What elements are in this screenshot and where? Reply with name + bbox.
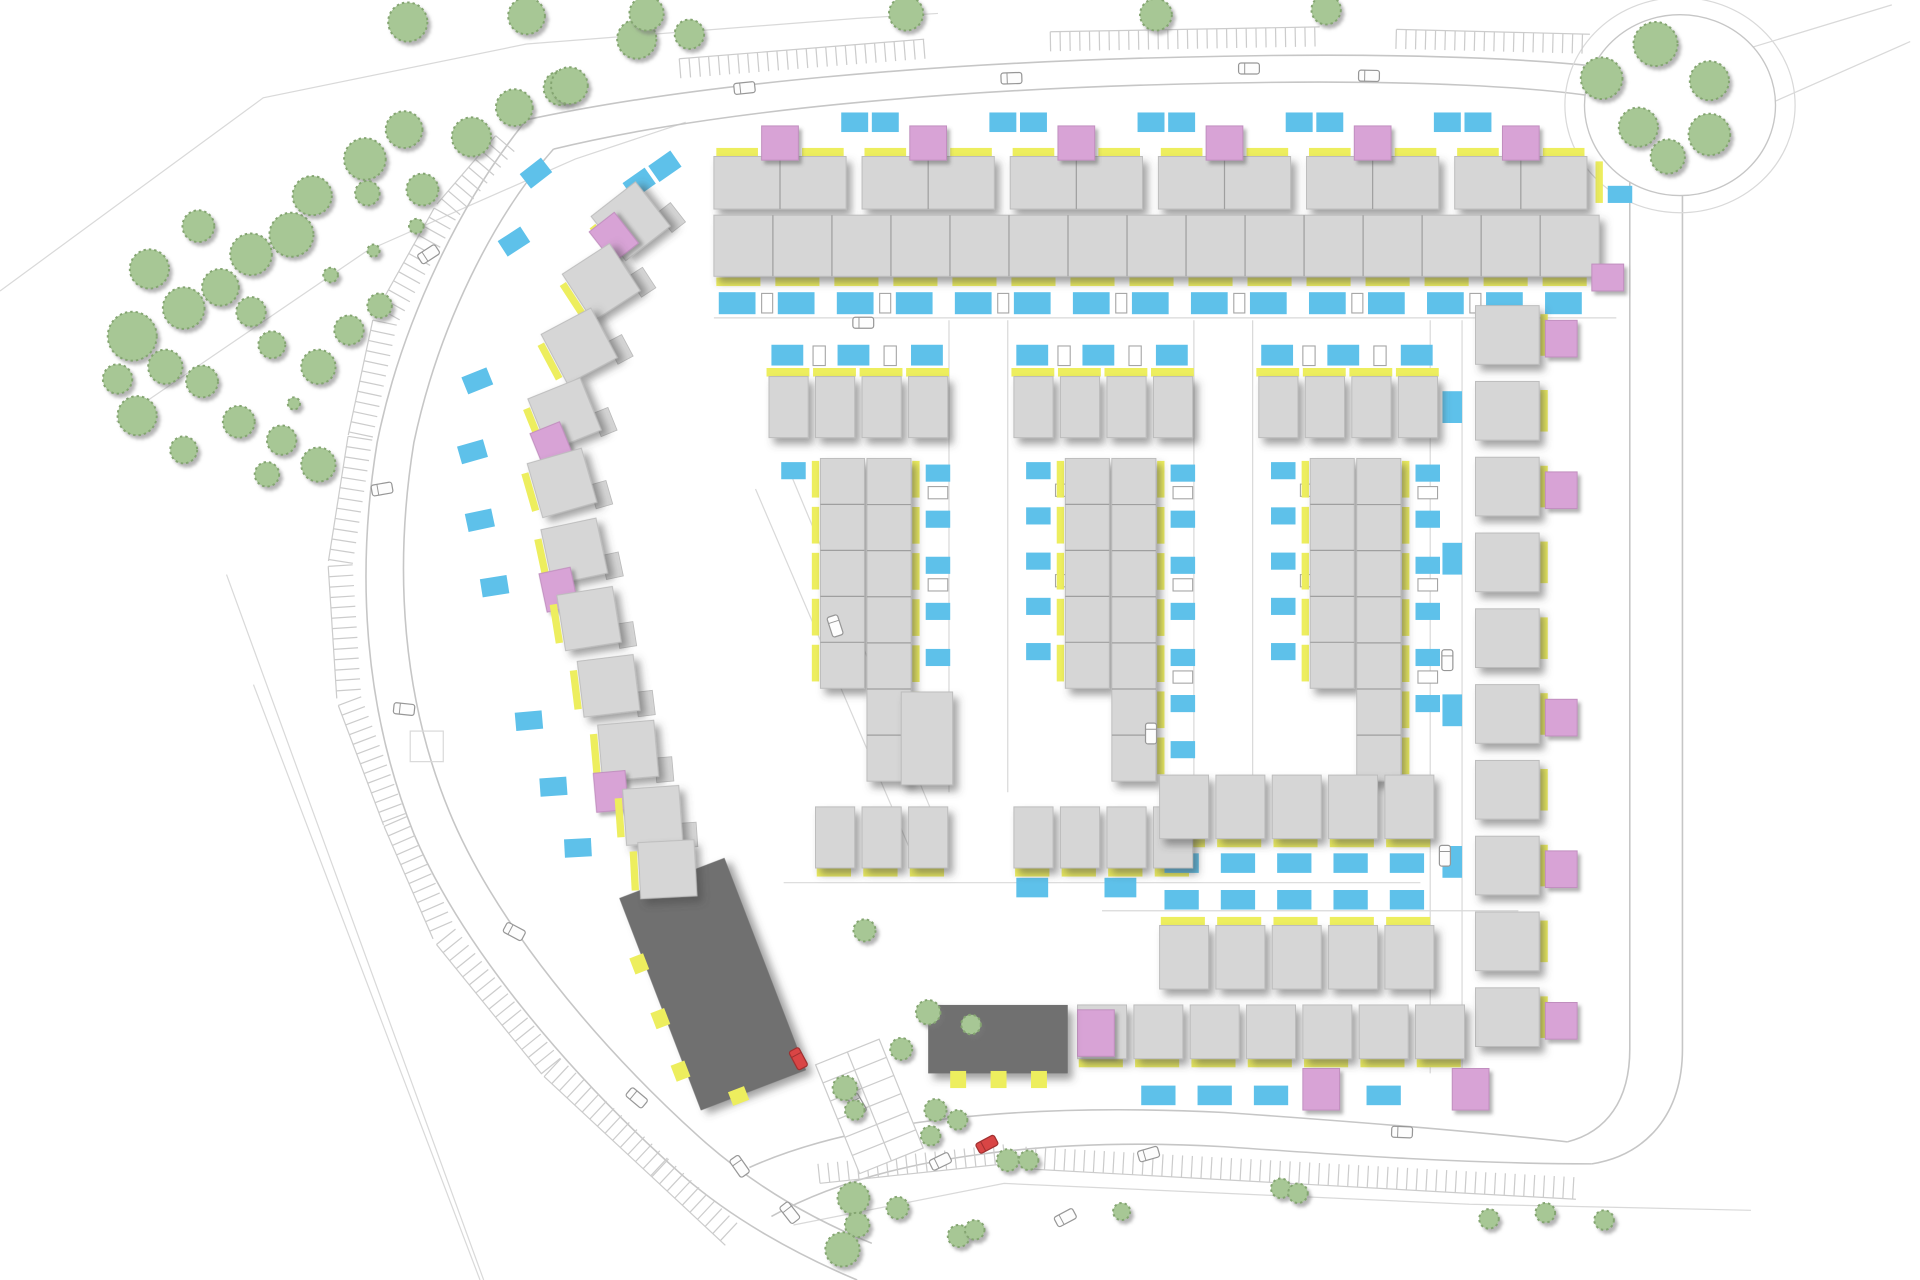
tree-canopy	[1689, 114, 1731, 156]
parking-space	[1164, 890, 1198, 910]
parking-bay-tick	[1269, 1160, 1270, 1182]
entrance-strip	[817, 868, 851, 877]
entrance-strip	[906, 368, 949, 377]
parking-space	[1082, 345, 1114, 366]
parking-bay-tick	[462, 175, 481, 191]
parking-bay-tick	[388, 290, 409, 302]
tree	[551, 67, 588, 104]
parking-bay-tick	[713, 1216, 730, 1234]
parking-space	[1390, 890, 1424, 910]
parking-space	[1416, 649, 1440, 666]
parking-bay-tick	[652, 1159, 669, 1177]
entrance-strip	[1302, 553, 1309, 590]
garden-shed	[1129, 346, 1141, 366]
tree	[148, 350, 182, 384]
entrance-strip	[1248, 1059, 1292, 1068]
entrance-strip	[716, 278, 760, 287]
entrance-strip	[1157, 507, 1164, 544]
parking-bay-tick	[338, 697, 361, 706]
parking-space	[1132, 292, 1169, 314]
detached-house	[557, 586, 621, 650]
parking-bay-tick	[337, 508, 361, 512]
entrance-strip	[813, 368, 856, 377]
house	[1107, 377, 1146, 438]
tree-canopy	[163, 287, 205, 329]
parking-space	[838, 345, 870, 366]
parking-space	[1271, 507, 1295, 524]
rotated-parking	[564, 838, 592, 858]
parking-bay-tick	[1524, 1174, 1525, 1196]
parking-space	[1416, 511, 1440, 528]
tree	[186, 366, 218, 398]
garden-shed	[1173, 579, 1193, 591]
parking-space	[778, 292, 815, 314]
tree-canopy	[1113, 1203, 1130, 1220]
entrance-strip	[1402, 645, 1409, 682]
entrance-strip	[1307, 278, 1351, 287]
tree	[269, 213, 313, 257]
tree	[182, 210, 214, 242]
terrace-finger	[1065, 458, 1109, 688]
car	[1442, 650, 1453, 671]
tree-canopy	[921, 1126, 941, 1146]
parking-bay-edge	[679, 39, 924, 59]
parking-bay-tick	[748, 53, 750, 72]
parking-space	[1401, 345, 1433, 366]
parking-bay-tick	[405, 864, 427, 874]
entrance-strip	[812, 553, 819, 590]
entrance-strip	[912, 553, 919, 590]
parking-space	[1073, 292, 1110, 314]
entrance-strip	[1256, 368, 1299, 377]
row-house	[1216, 775, 1265, 839]
parking-bay-tick	[845, 45, 847, 64]
tree	[997, 1149, 1019, 1171]
tree-canopy	[223, 406, 255, 438]
parking-bay-tick	[343, 467, 367, 471]
parking-bay-tick	[417, 893, 439, 903]
accent-house	[1058, 126, 1095, 160]
entrance-strip	[1330, 839, 1374, 848]
parking-bay-tick	[1240, 1159, 1241, 1181]
entrance-strip	[1417, 1059, 1461, 1068]
tree-canopy	[1288, 1183, 1308, 1203]
apartment-block-group	[928, 1005, 1068, 1088]
parking-bay-tick	[1172, 1155, 1173, 1177]
tree-canopy	[407, 174, 439, 206]
car	[853, 317, 874, 328]
entrance-strip	[1543, 148, 1585, 157]
row-house	[1160, 925, 1209, 989]
car	[1358, 70, 1379, 81]
parking-bay-tick	[334, 529, 358, 533]
parking-bay-tick	[816, 48, 818, 67]
parking-bay-tick	[1485, 1172, 1486, 1194]
parking-space	[1016, 878, 1048, 898]
entrance-strip	[1104, 368, 1147, 377]
parking-space	[539, 777, 567, 797]
parking-bay-tick	[1201, 1157, 1202, 1179]
car	[729, 1155, 750, 1178]
accent-house	[1078, 1010, 1115, 1056]
tree	[323, 268, 338, 283]
parking-bay-tick	[1338, 1164, 1339, 1186]
tree	[388, 2, 427, 41]
row-house	[1329, 925, 1378, 989]
entrance-strip	[1108, 868, 1142, 877]
entrance-strip	[1366, 278, 1410, 287]
parking-bay-tick	[718, 56, 720, 75]
tree-canopy	[258, 331, 285, 358]
detached-house	[1476, 609, 1540, 668]
parking-bay-tick	[334, 658, 358, 660]
tree	[108, 312, 157, 361]
tree	[130, 249, 169, 288]
car	[1137, 1146, 1160, 1162]
parking-bay-tick	[509, 1018, 528, 1033]
parking-bay-tick	[338, 498, 362, 502]
parking-bay-tick	[442, 199, 461, 215]
tree-canopy	[388, 2, 427, 41]
parking-bay-tick	[329, 575, 353, 577]
detached-house	[1476, 912, 1540, 971]
entrance-strip	[1386, 839, 1430, 848]
car	[1001, 72, 1022, 84]
entrance-strip	[1304, 1059, 1348, 1068]
parking-bay-tick	[335, 518, 359, 522]
parking-bay-tick	[434, 208, 455, 220]
entrance-strip	[1543, 278, 1587, 287]
entrance-strip	[1098, 148, 1140, 157]
tree	[118, 396, 157, 435]
tree-canopy	[118, 396, 157, 435]
parking-bay-tick	[1074, 1149, 1075, 1171]
entrance-strip	[1079, 1059, 1123, 1068]
tree	[288, 397, 300, 409]
entrance-strip	[1302, 599, 1309, 636]
parking-bay-tick	[567, 1080, 584, 1098]
parking-bay-tick	[1387, 1167, 1388, 1189]
entrance-strip	[1157, 553, 1164, 590]
parking-bay-tick	[605, 1115, 622, 1133]
parking-bay-tick	[1504, 1173, 1505, 1195]
parking-space	[457, 439, 488, 464]
parking-space	[515, 710, 543, 731]
parking-space	[1316, 112, 1343, 132]
parking-bay-tick	[346, 447, 370, 451]
tree	[924, 1099, 946, 1121]
entrance-strip	[812, 507, 819, 544]
row-house	[1272, 775, 1321, 839]
parking-bay-tick	[401, 855, 423, 865]
parking-space	[1333, 890, 1367, 910]
parking-space	[926, 649, 950, 666]
house	[1352, 377, 1391, 438]
parking-space	[989, 112, 1016, 132]
parking-bay-tick	[1318, 1163, 1319, 1185]
parking-bay-tick	[430, 921, 452, 931]
entrance-strip	[1057, 599, 1064, 636]
tree-canopy	[1479, 1209, 1499, 1229]
parking-bay-tick	[875, 43, 877, 62]
parking-bay-tick	[1162, 1154, 1163, 1176]
parking-bay-tick	[340, 488, 364, 492]
parking-bay-tick	[1573, 1177, 1574, 1199]
entrance-strip	[1457, 148, 1499, 157]
tree	[386, 111, 423, 148]
entrance-strip	[1402, 599, 1409, 636]
parking-space	[1271, 598, 1295, 615]
parking-bay-tick	[388, 826, 410, 836]
row-house	[862, 807, 901, 868]
house	[1153, 377, 1192, 438]
car	[779, 1201, 801, 1224]
tree	[1113, 1203, 1130, 1220]
parking-bay-tick	[738, 54, 740, 73]
entrance-strip	[863, 868, 897, 877]
tree	[833, 1076, 857, 1100]
parking-bay-tick	[502, 1010, 521, 1025]
parking-bay-tick	[904, 41, 906, 60]
red-car	[975, 1135, 999, 1154]
house	[1259, 377, 1298, 438]
parking-bay-tick	[364, 765, 387, 774]
parking-space	[1545, 292, 1582, 314]
parking-bay-tick	[541, 1058, 560, 1073]
tree-canopy	[997, 1149, 1019, 1171]
row-house	[1329, 775, 1378, 839]
car	[1439, 845, 1450, 866]
house	[816, 377, 855, 438]
parking-bay-tick	[1289, 1161, 1290, 1183]
road-edge	[1592, 193, 1683, 1164]
tree-canopy	[452, 117, 491, 156]
parking-bay-tick	[659, 1166, 676, 1184]
accent-house	[1354, 126, 1391, 160]
parking-space	[1390, 853, 1424, 873]
tree	[267, 425, 296, 454]
parking-space	[1171, 557, 1195, 574]
entrance-strip	[1188, 278, 1232, 287]
garden-shed	[1116, 293, 1127, 313]
entrance-strip	[1057, 461, 1064, 498]
entrance-strip	[1596, 161, 1603, 203]
parking-space	[1416, 695, 1440, 712]
tree	[1140, 0, 1172, 31]
parking-bay-tick	[884, 42, 886, 61]
tree-canopy	[965, 1220, 985, 1240]
garden-shed	[880, 293, 891, 313]
red-car	[975, 1135, 999, 1154]
parking-bay-tick	[828, 1163, 830, 1182]
parking-bay-tick	[767, 52, 769, 71]
tree	[301, 350, 335, 384]
row-house	[816, 807, 855, 868]
car	[1439, 845, 1450, 866]
entrance-strip	[1540, 769, 1547, 811]
tree-canopy	[301, 447, 335, 481]
tree-canopy	[961, 1015, 981, 1035]
entrance-strip	[1302, 461, 1309, 498]
tree-canopy	[825, 1232, 859, 1266]
tree	[230, 234, 272, 276]
parking-space	[1171, 649, 1195, 666]
parking-bay-tick	[1543, 1175, 1544, 1197]
tree-canopy	[1594, 1210, 1614, 1230]
parking-bay-tick	[1397, 1167, 1398, 1189]
garden-shed	[1352, 293, 1363, 313]
car	[1239, 63, 1260, 74]
entrance-strip	[950, 148, 992, 157]
parking-bay-tick	[366, 351, 390, 356]
parking-space	[465, 508, 495, 532]
parking-bay-tick	[1455, 1171, 1456, 1193]
accent-house	[1545, 699, 1577, 736]
entrance-strip	[1011, 278, 1055, 287]
tree	[255, 462, 279, 486]
offset-house-block	[901, 692, 952, 785]
tree-canopy	[1619, 108, 1658, 147]
entrance-strip	[1309, 148, 1351, 157]
parking-bay-tick	[1328, 1164, 1329, 1186]
parking-bay-tick	[456, 953, 475, 968]
tree	[452, 117, 491, 156]
parking-bay-edge	[1050, 27, 1319, 32]
parking-bay-tick	[362, 371, 386, 376]
entrance-strip	[1248, 278, 1292, 287]
car	[929, 1152, 953, 1171]
parking-bay-tick	[368, 775, 391, 784]
parking-bay-tick	[1084, 1150, 1085, 1172]
entrance-strip	[1013, 148, 1055, 157]
parking-bay-tick	[419, 235, 440, 247]
car	[1239, 63, 1260, 74]
parking-bay-tick	[448, 191, 467, 207]
parking-space	[1026, 643, 1050, 660]
tree-canopy	[1311, 0, 1340, 24]
tree-canopy	[675, 20, 704, 49]
detached-house	[1476, 457, 1540, 516]
tree	[1633, 22, 1677, 66]
terrace-finger	[1357, 458, 1401, 781]
parking-bay-tick	[1054, 1148, 1055, 1170]
parking-bay-tick	[1260, 1160, 1261, 1182]
tree	[675, 20, 704, 49]
car	[1358, 70, 1379, 81]
parking-bay-tick	[597, 1108, 614, 1126]
parking-space	[1016, 345, 1048, 366]
tree-canopy	[236, 297, 265, 326]
parking-bay-edge	[652, 1177, 725, 1245]
apartment-block-group	[608, 858, 809, 1122]
parking-bay-tick	[455, 183, 474, 199]
tree	[202, 269, 239, 306]
parking-bay-tick	[559, 1073, 576, 1091]
car	[734, 81, 756, 94]
parking-bay-tick	[332, 617, 356, 619]
parking-bay-tick	[330, 586, 354, 588]
parking-space	[719, 292, 756, 314]
tree-canopy	[386, 111, 423, 148]
tree-canopy	[1581, 57, 1623, 99]
parking-bay-tick	[1445, 1170, 1446, 1192]
rotated-parking	[457, 439, 488, 464]
garden-shed	[1374, 346, 1386, 366]
apartment-block	[928, 1005, 1068, 1073]
parking-bay-tick	[643, 1151, 660, 1169]
parking-bay-tick	[964, 1149, 966, 1168]
site-boundary-line	[1772, 42, 1910, 103]
parking-bay-tick	[1093, 1151, 1094, 1173]
entrance-strip	[1330, 917, 1374, 926]
parking-bay-tick	[651, 1158, 668, 1176]
parking-bay-tick	[346, 716, 369, 725]
parking-space	[1171, 603, 1195, 620]
house	[1305, 377, 1344, 438]
entrance-strip	[1191, 1059, 1235, 1068]
rotated-parking	[539, 777, 567, 797]
entrance-strip	[1129, 278, 1173, 287]
tree-canopy	[323, 268, 338, 283]
parking-space	[1271, 643, 1295, 660]
parking-space	[1026, 507, 1050, 524]
entrance-strip	[1425, 278, 1469, 287]
parking-bay-tick	[357, 745, 380, 754]
tree-canopy	[255, 462, 279, 486]
detached-house	[1476, 533, 1540, 592]
entrance-tab	[1031, 1071, 1047, 1088]
tree	[965, 1220, 985, 1240]
parking-bay-tick	[353, 412, 377, 417]
entrance-strip	[952, 278, 996, 287]
rotated-parking	[465, 508, 495, 532]
accent-house	[762, 126, 799, 160]
terrace-row	[714, 215, 1599, 276]
parking-space	[1104, 878, 1136, 898]
accent-house	[1502, 126, 1539, 160]
garden-shed	[928, 487, 948, 499]
parking-bay-tick	[348, 436, 372, 440]
parking-bay-tick	[1230, 1158, 1231, 1180]
entrance-strip	[1402, 553, 1409, 590]
parking-bay-tick	[426, 912, 448, 922]
parking-space	[1026, 598, 1050, 615]
entrance-strip	[1247, 148, 1289, 157]
site-plan-canvas	[0, 0, 1920, 1280]
site-boundary-line	[253, 685, 480, 1280]
car	[1391, 1126, 1412, 1138]
parking-bay-tick	[1221, 1158, 1222, 1180]
tree-canopy	[890, 1038, 912, 1060]
parking-bay-tick	[450, 945, 469, 960]
tree-canopy	[186, 366, 218, 398]
tree	[301, 447, 335, 481]
parking-bay-tick	[582, 1094, 599, 1112]
car	[371, 482, 393, 496]
tree-canopy	[182, 210, 214, 242]
parking-bay-tick	[424, 226, 445, 238]
rotated-parking	[480, 575, 509, 597]
parking-space	[771, 345, 803, 366]
tree	[1536, 1203, 1556, 1223]
entrance-strip	[910, 868, 944, 877]
tree	[845, 1100, 865, 1120]
arc-house-group	[629, 840, 697, 900]
parking-space	[498, 227, 531, 257]
parking-bay-tick	[699, 57, 701, 76]
parking-bay-tick	[709, 56, 711, 75]
parking-space	[926, 465, 950, 482]
